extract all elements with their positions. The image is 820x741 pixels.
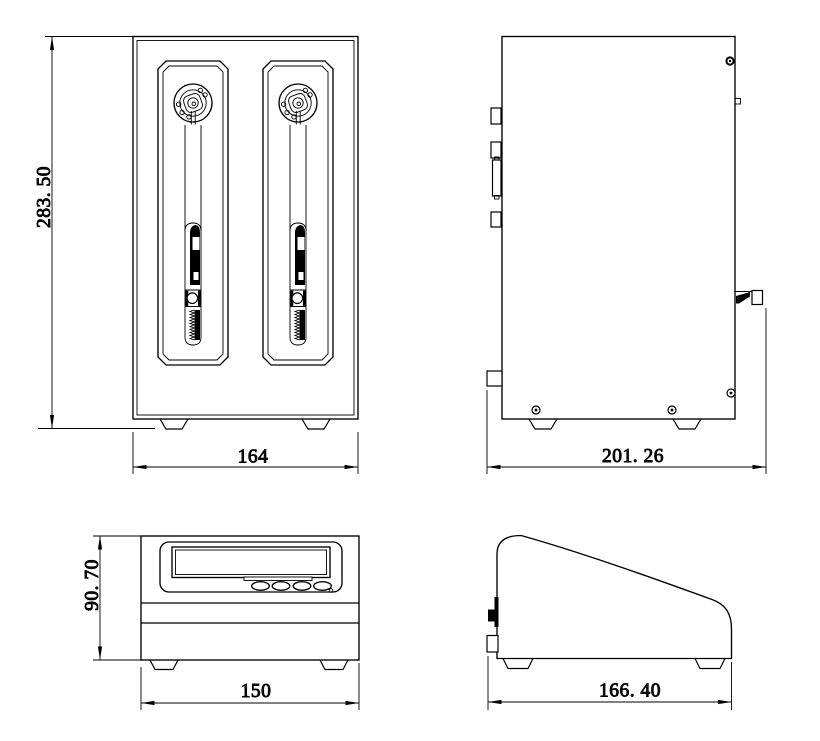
connector-port-2 (491, 142, 501, 158)
pusher-lever-slot (194, 272, 199, 280)
dimension-text: 283. 50 (34, 166, 55, 228)
panel-screw-bottom-left (532, 406, 540, 414)
nozzle-cap (752, 291, 763, 305)
pusher-pivot (187, 293, 198, 304)
dimension-text: 166. 40 (599, 681, 661, 702)
dimension-text: 150 (241, 681, 272, 702)
side-power-socket (487, 636, 498, 653)
dimension-text: 90. 70 (82, 559, 103, 611)
pusher-lever-notch (193, 237, 200, 250)
hinge-shade-right (198, 291, 201, 306)
dimension-text: 164 (238, 447, 269, 468)
connector-port-1 (491, 108, 501, 124)
technical-drawing: 283. 50 164 201. 26 90. 70 (0, 0, 820, 741)
panel-screw-bottom-right (727, 389, 735, 397)
label-strip (244, 577, 312, 581)
side-switch-knob (488, 610, 495, 622)
connector-port-long (493, 160, 502, 196)
panel-screw-top (725, 56, 734, 65)
side-switch-bar (495, 597, 499, 627)
drawing-background (0, 0, 820, 741)
dimension-text: 201. 26 (602, 446, 664, 467)
base-protrusion (487, 371, 502, 386)
drawing-canvas: 283. 50 164 201. 26 90. 70 (0, 0, 820, 741)
connector-port-3 (491, 212, 501, 227)
panel-screw-bottom-mid (668, 406, 676, 414)
